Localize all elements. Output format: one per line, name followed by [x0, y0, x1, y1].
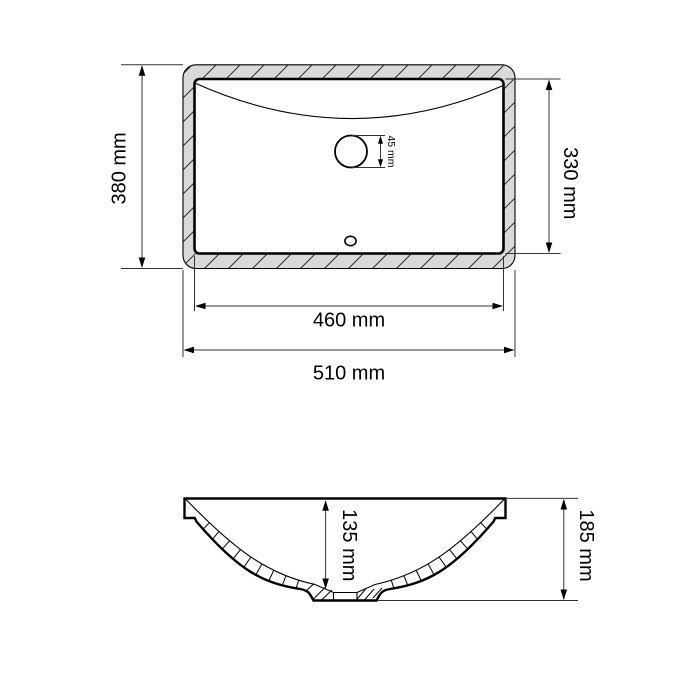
- svg-text:135 mm: 135 mm: [338, 509, 360, 581]
- svg-text:45 mm: 45 mm: [385, 135, 397, 167]
- svg-text:380 mm: 380 mm: [108, 132, 130, 204]
- svg-text:510 mm: 510 mm: [313, 363, 385, 385]
- svg-text:460 mm: 460 mm: [313, 310, 385, 332]
- svg-text:185 mm: 185 mm: [575, 509, 597, 581]
- svg-text:330 mm: 330 mm: [559, 147, 581, 219]
